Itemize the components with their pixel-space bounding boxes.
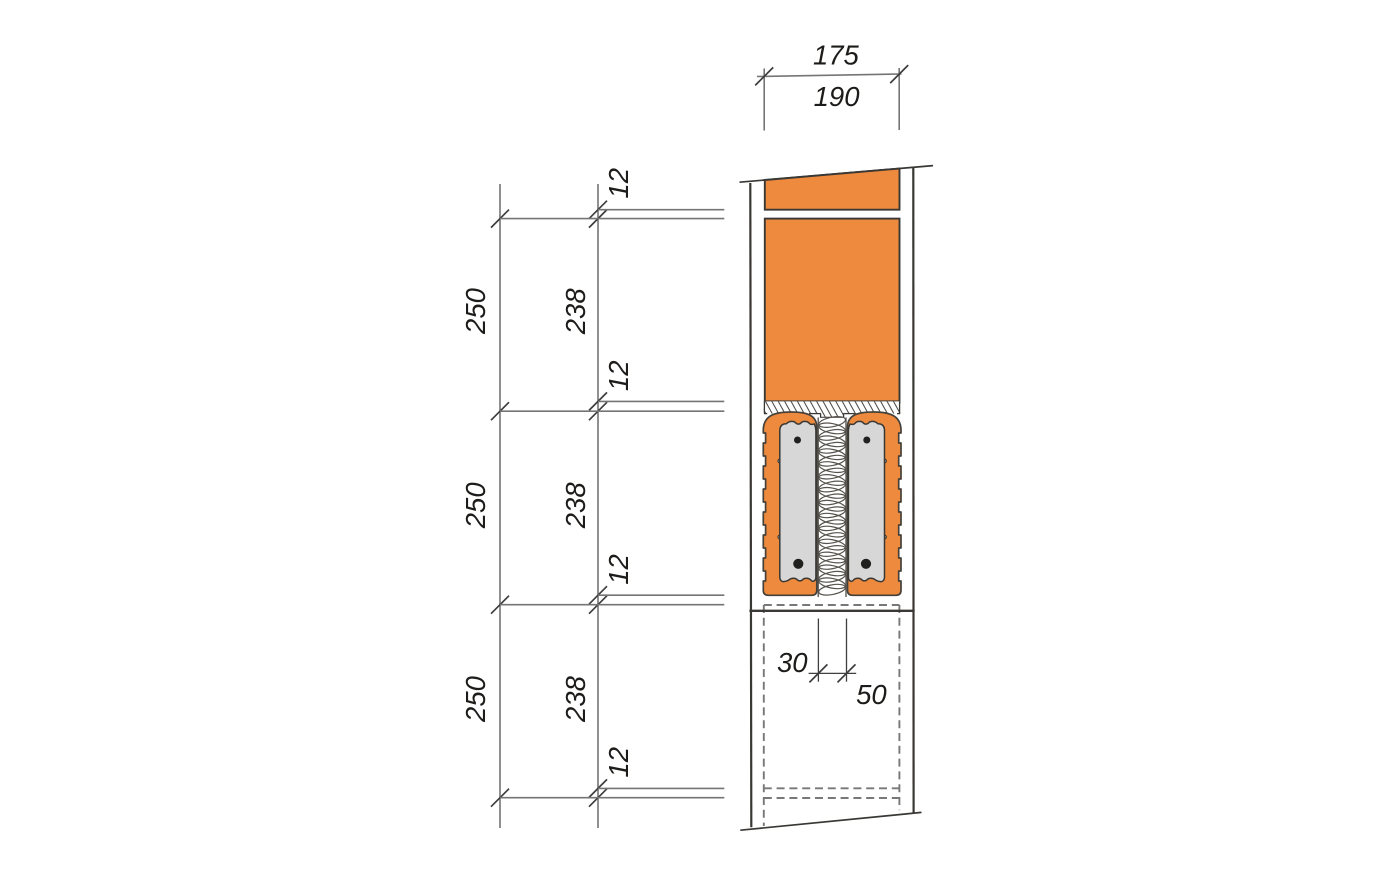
svg-text:238: 238 <box>560 482 591 530</box>
svg-text:12: 12 <box>603 168 634 199</box>
svg-text:12: 12 <box>603 747 634 778</box>
svg-text:12: 12 <box>603 361 634 392</box>
svg-text:238: 238 <box>560 675 591 723</box>
svg-text:250: 250 <box>460 482 491 530</box>
svg-text:50: 50 <box>856 679 887 710</box>
svg-text:238: 238 <box>560 288 591 336</box>
svg-text:175: 175 <box>813 39 860 70</box>
svg-text:12: 12 <box>603 554 634 585</box>
svg-text:190: 190 <box>814 81 861 112</box>
svg-text:30: 30 <box>777 647 808 678</box>
svg-text:250: 250 <box>460 287 491 335</box>
svg-text:250: 250 <box>460 675 491 723</box>
